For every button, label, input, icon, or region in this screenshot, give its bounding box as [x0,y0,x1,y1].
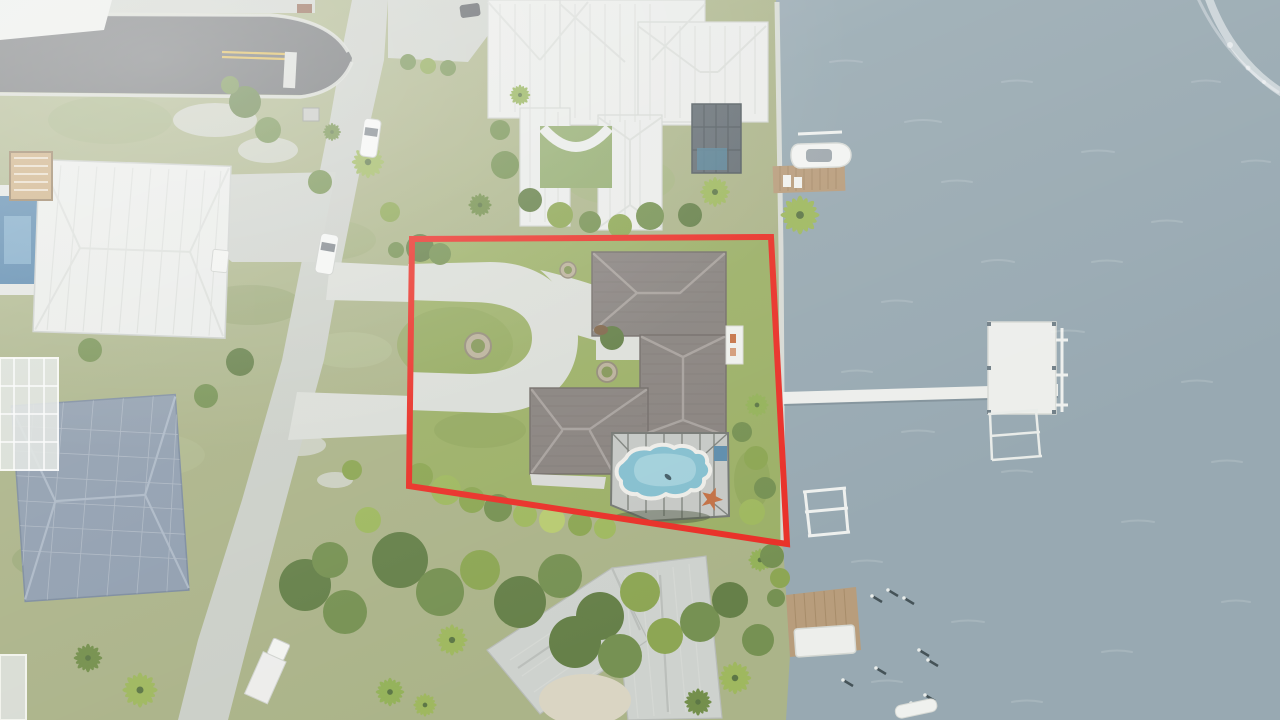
global-wash [0,0,1280,720]
aerial-photo [0,0,1280,720]
